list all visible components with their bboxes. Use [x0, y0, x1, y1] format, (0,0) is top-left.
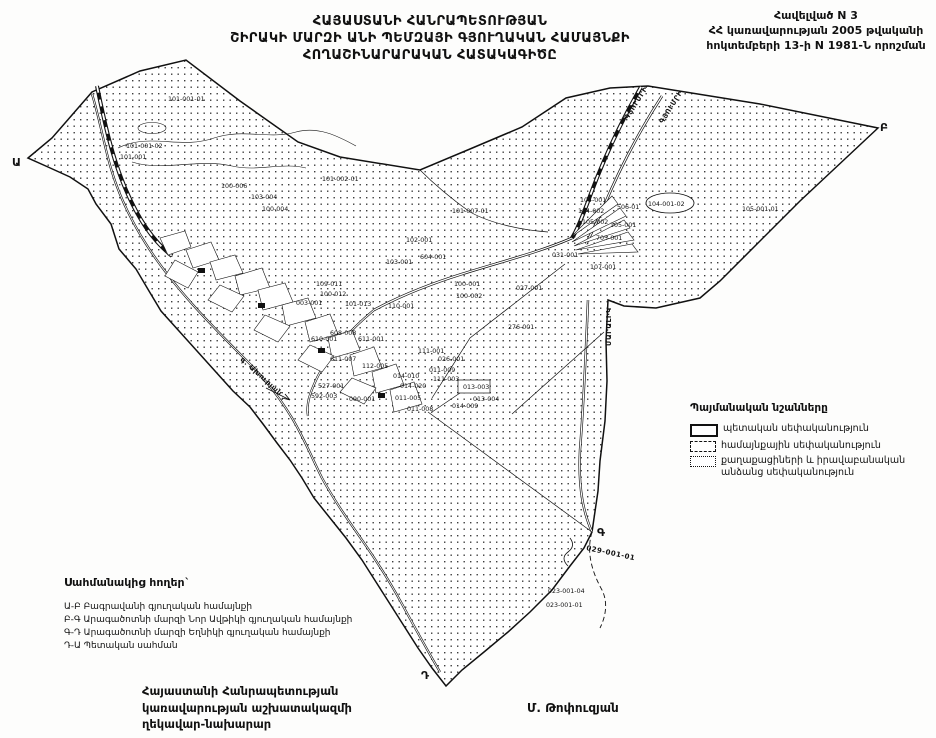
legend-title: Պայմանական նշանները: [690, 402, 934, 414]
adjacent-line-gd: Գ-Դ Արագածոտնի մարզի Եղնիկի գյուղական հա…: [64, 627, 394, 640]
parcel-code-label: 101-001: [120, 154, 146, 161]
parcel-code-label: 105-001-01: [742, 206, 779, 213]
route-label: ՄԱՐԱԼԻԿ: [605, 307, 613, 346]
parcel-code-label: 112-005: [362, 363, 388, 370]
parcel-code-label: 103-004: [251, 194, 277, 201]
parcel-code-label: 100-006: [221, 183, 247, 190]
legend: Պայմանական նշանները պետական սեփականությո…: [690, 402, 934, 479]
legend-item-label: համայնքային սեփականություն: [721, 440, 881, 452]
parcel-code-label: 100-012: [320, 291, 346, 298]
legend-item-community: համայնքային սեփականություն: [690, 440, 934, 452]
parcel-code-label: 011-009: [429, 367, 455, 374]
scanned-map-document: 101-001-01101-001-02101-001101-002-01100…: [0, 0, 936, 738]
parcel-code-label: 027-001: [516, 285, 542, 292]
parcel-code-label: 023-001-01: [546, 602, 583, 609]
community-property-swatch-icon: [690, 441, 716, 452]
parcel-code-label: 014-020: [400, 383, 426, 390]
title-line-2: ՇԻՐԱԿԻ ՄԱՐԶԻ ԱՆԻ ՊԵՄԶԱՅԻ ԳՅՈՒՂԱԿԱՆ ՀԱՄԱՅ…: [168, 30, 692, 47]
parcel-code-label: 111-003: [433, 376, 459, 383]
parcel-code-label: 100-004: [262, 206, 288, 213]
parcel-code-label: 104-001: [580, 197, 606, 204]
parcel-code-label: 090-001: [349, 396, 375, 403]
parcel-code-label: 527-001: [318, 383, 344, 390]
parcel-code-label: 101-002-01: [322, 176, 359, 183]
parcel-code-label: 103-001: [386, 259, 412, 266]
parcel-code-label: 031-001: [552, 252, 578, 259]
parcel-code-label: 014-010: [393, 373, 419, 380]
annex-line-2: ՀՀ կառավարության 2005 թվականի: [698, 24, 934, 39]
boundary-point-letter: Դ: [421, 669, 430, 682]
parcel-code-label: 013-004: [473, 396, 499, 403]
parcel-code-label: 100-002: [456, 293, 482, 300]
parcel-code-label: 506-01: [617, 204, 639, 211]
signer-name: Մ. Թոփուզյան: [527, 701, 619, 715]
parcel-code-label: 611-007: [330, 356, 356, 363]
adjacent-line-bg: Բ-Գ Արագածոտնի մարզի Նոր Ավթիկի գյուղակա…: [64, 614, 394, 627]
adjacent-lands-note: Սահմանակից հողեր` Ա-Բ Բագրավանի գյուղակա…: [64, 576, 394, 653]
parcel-code-label: 111-001: [418, 348, 444, 355]
parcel-code-label: 026-001: [438, 356, 464, 363]
parcel-code-label: 013-003: [463, 384, 489, 391]
legend-item-state: պետական սեփականություն: [690, 423, 934, 437]
map-title: ՀԱՅԱՍՏԱՆԻ ՀԱՆՐԱՊԵՏՈՒԹՅԱՆ ՇԻՐԱԿԻ ՄԱՐԶԻ ԱՆ…: [168, 13, 692, 64]
annex-note: Հավելված N 3 ՀՀ կառավարության 2005 թվակա…: [698, 9, 934, 54]
parcel-code-label: 109-011: [316, 281, 342, 288]
parcel-code-label: 101-001-02: [126, 143, 163, 150]
parcel-code-label: 104-001-02: [648, 201, 685, 208]
signature-block: Հայաստանի Հանրապետության կառավարության ա…: [142, 683, 442, 733]
parcel-code-label: 011-005: [395, 395, 421, 402]
parcel-code-label: 604-001: [420, 254, 446, 261]
legend-item-label: քաղաքացիների և իրավաբանական: [721, 455, 905, 467]
parcel-code-label: 276-001: [508, 324, 534, 331]
route-label: 029-001-01: [586, 544, 636, 562]
signature-line-1: Հայաստանի Հանրապետության: [142, 683, 442, 700]
parcel-code-label: 705-001: [596, 235, 622, 242]
adjacent-lands-title: Սահմանակից հողեր`: [64, 576, 394, 589]
parcel-code-label: 611-001: [358, 336, 384, 343]
adjacent-line-ab: Ա-Բ Բագրավանի գյուղական համայնքի: [64, 601, 394, 614]
parcel-code-label: 610-001: [311, 336, 337, 343]
legend-item-label-continued: անձանց սեփականություն: [721, 467, 934, 479]
parcel-code-label: 023-001-04: [548, 588, 585, 595]
boundary-point-letter: Ա: [12, 156, 21, 169]
parcel-code-label: 592-003: [311, 393, 337, 400]
adjacent-line-da: Դ-Ա Պետական սահման: [64, 640, 394, 653]
title-line-3: ՀՈՂԱՇԻՆԱՐԱՐԱԿԱՆ ՀԱՏԱԿԱԳԻԾԸ: [168, 47, 692, 64]
parcel-code-label: 105-002: [582, 219, 608, 226]
legend-item-label: պետական սեփականություն: [723, 423, 869, 435]
annex-line-3: հոկտեմբերի 13-ի N 1981-Ն որոշման: [698, 39, 934, 54]
parcel-code-label: 101-007-01: [452, 208, 489, 215]
parcel-code-label: 107-001: [590, 264, 616, 271]
parcel-code-label: 100-001: [454, 281, 480, 288]
annex-line-1: Հավելված N 3: [698, 9, 934, 24]
parcel-code-label: 014-009: [452, 403, 478, 410]
state-property-swatch-icon: [690, 424, 718, 437]
parcel-code-label: 011-008: [407, 406, 433, 413]
parcel-code-label: 110-001: [388, 303, 414, 310]
parcel-code-label: 104-002: [578, 208, 604, 215]
boundary-point-letter: Գ: [597, 526, 606, 539]
signature-line-3: ղեկավար-նախարար: [142, 716, 442, 733]
boundary-point-letter: Բ: [880, 121, 888, 134]
signature-line-2: կառավարության աշխատակազմի: [142, 700, 442, 717]
parcel-code-label: 003-001: [296, 300, 322, 307]
parcel-code-label: 101-013: [345, 301, 371, 308]
parcel-code-label: 105-001: [610, 222, 636, 229]
parcel-code-label: 101-001-01: [168, 96, 205, 103]
citizens-property-swatch-icon: [690, 456, 716, 467]
legend-item-citizens: քաղաքացիների և իրավաբանական: [690, 455, 934, 467]
title-line-1: ՀԱՅԱՍՏԱՆԻ ՀԱՆՐԱՊԵՏՈՒԹՅԱՆ: [168, 13, 692, 30]
parcel-code-label: 102-001: [406, 237, 432, 244]
